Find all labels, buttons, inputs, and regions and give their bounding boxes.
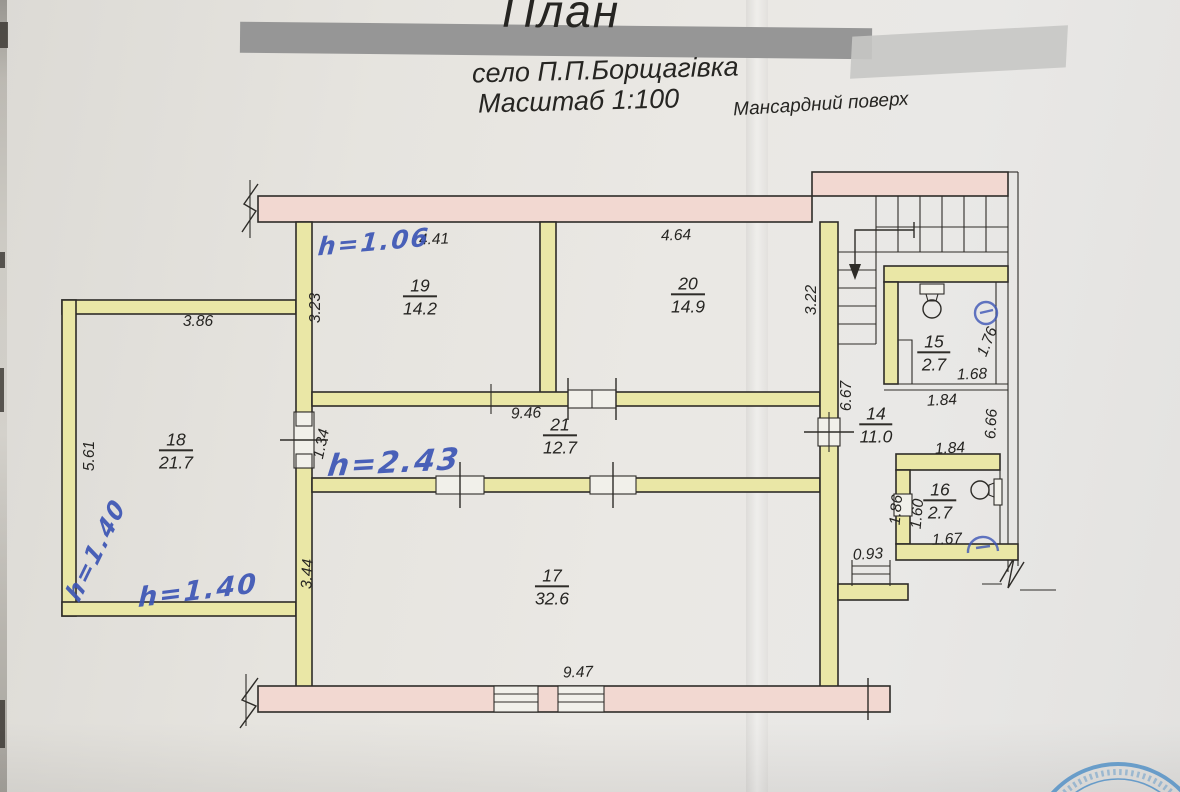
dim-room17-left: 3.44 — [298, 558, 318, 589]
room-area: 2.7 — [917, 355, 950, 376]
room-area: 14.9 — [671, 297, 705, 318]
room-number: 20 — [671, 274, 704, 295]
dim-wc16-left: 1.86 — [887, 494, 908, 526]
dim-room20-right: 3.22 — [803, 285, 821, 315]
toilet-icon-wc15 — [920, 284, 944, 318]
dim-hall-bottom: 0.93 — [852, 545, 883, 565]
toilet-icon-wc16 — [971, 479, 1002, 505]
scanned-floor-plan-page: План село П.П.Борщагівка Масштаб 1:100 М… — [0, 0, 1180, 792]
room-area: 21.7 — [159, 453, 193, 474]
top-exterior-wall — [242, 180, 812, 238]
room-area: 32.6 — [535, 589, 569, 610]
stamp — [1030, 764, 1180, 792]
dim-hall-right: 6.66 — [982, 408, 1002, 439]
room-number: 14 — [859, 404, 892, 425]
dim-wc16-top: 1.84 — [934, 439, 965, 459]
dim-wc15-inner: 1.68 — [957, 365, 988, 384]
blue-circle-mark — [975, 302, 997, 324]
room-number: 15 — [917, 332, 950, 353]
room-area: 2.7 — [923, 503, 956, 524]
handwritten-height-room21: h=2.43 — [326, 442, 463, 484]
room-number: 19 — [403, 276, 436, 297]
room-18-label: 18 21.7 — [159, 430, 193, 473]
dim-room18-left: 5.61 — [81, 441, 99, 471]
room-14-label: 14 11.0 — [859, 404, 892, 447]
room-21-label: 21 12.7 — [543, 415, 577, 458]
room-number: 16 — [923, 480, 956, 501]
room-area: 11.0 — [859, 427, 892, 448]
dim-wc16-inner: 1.67 — [931, 530, 962, 550]
dim-room18-top: 3.86 — [183, 313, 213, 331]
dim-hall-left: 6.67 — [838, 381, 856, 411]
room-19-label: 19 14.2 — [403, 276, 437, 319]
dim-wc16-door: 1.60 — [908, 498, 929, 530]
dim-room21-top: 9.46 — [511, 404, 542, 423]
room-20-label: 20 14.9 — [671, 274, 705, 317]
room-area: 12.7 — [543, 438, 577, 459]
room-number: 17 — [535, 566, 568, 587]
interior-walls — [62, 222, 1018, 688]
dim-bottom-wall: 9.47 — [563, 663, 594, 682]
room-16-label: 16 2.7 — [923, 480, 956, 523]
dim-room19-left: 3.23 — [307, 293, 325, 323]
room-17-label: 17 32.6 — [535, 566, 569, 609]
dim-wc15-bottom: 1.84 — [926, 391, 957, 411]
room-number: 21 — [543, 415, 576, 436]
room-area: 14.2 — [403, 299, 437, 320]
dim-room20-top: 4.64 — [661, 226, 692, 245]
room-number: 18 — [159, 430, 192, 451]
room-15-label: 15 2.7 — [917, 332, 950, 375]
